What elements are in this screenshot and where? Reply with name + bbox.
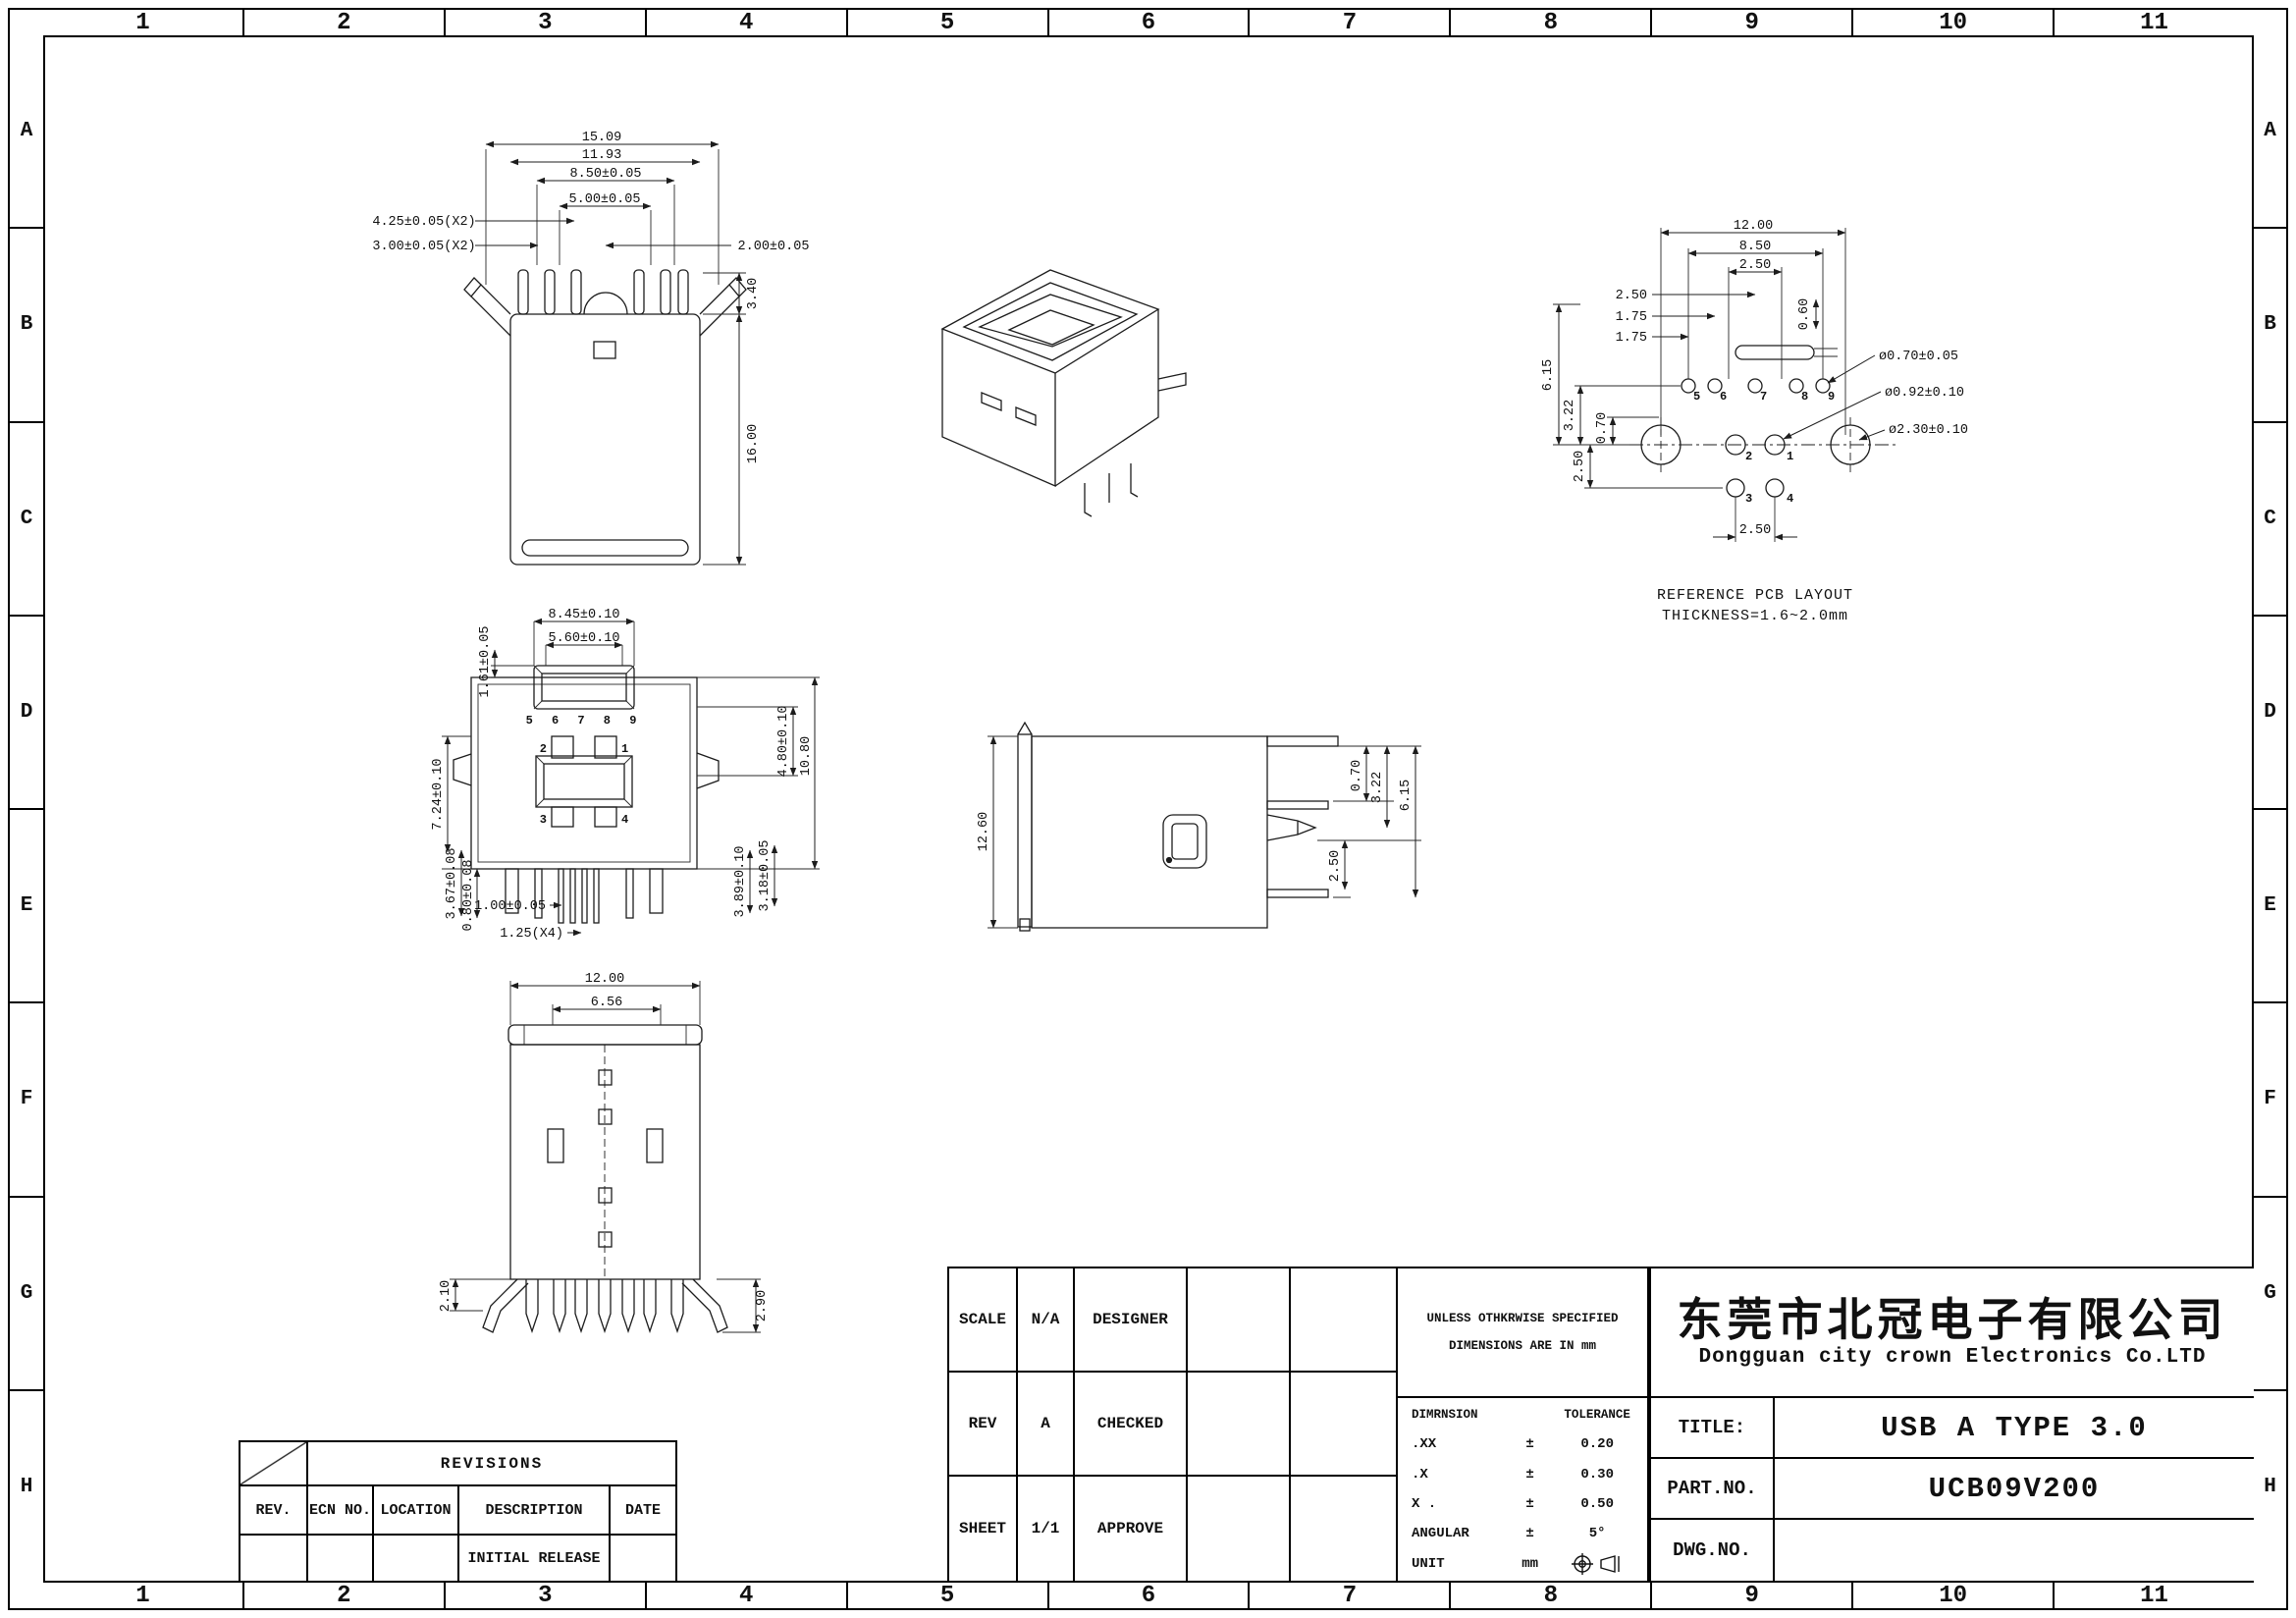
drawing-sheet: 1 2 3 4 5 6 7 8 9 10 11 1 2 3 4 5 6 7 8 … [0, 0, 2296, 1618]
column-label: 8 [1449, 1583, 1650, 1608]
bottom-view-drawing: 12.00 6.56 2.10 2.90 [422, 962, 795, 1375]
revisions-header-location: LOCATION [374, 1486, 459, 1536]
row-label: H [2254, 1389, 2286, 1583]
column-label: 4 [645, 10, 846, 35]
pcb-pin-label: 7 [1760, 390, 1767, 404]
dim-label: 2.90 [755, 1290, 770, 1321]
revisions-title: REVISIONS [308, 1442, 675, 1486]
column-label: 5 [846, 10, 1047, 35]
company-name-cn: 东莞市北冠电子有限公司 [1678, 1296, 2228, 1346]
empty-cell [1291, 1268, 1396, 1373]
top-view-dim-lines [475, 144, 746, 565]
side-view-drawing: 12.60 0.70 3.22 6.15 2.50 [962, 677, 1443, 982]
column-label: 9 [1650, 1583, 1851, 1608]
designer-label: DESIGNER [1075, 1268, 1188, 1373]
dim-label: 4.80±0.10 [776, 706, 791, 778]
side-view-body [1018, 723, 1338, 931]
row-label: E [2254, 808, 2286, 1001]
tolerance-block: UNLESS OTHKRWISE SPECIFIED DIMENSIONS AR… [1396, 1267, 1649, 1583]
column-label: 7 [1248, 1583, 1449, 1608]
revisions-cell-description: INITIAL RELEASE [459, 1536, 611, 1581]
pcb-caption-line1: REFERENCE PCB LAYOUT [1657, 587, 1853, 604]
dim-label: 2.50 [1616, 289, 1647, 303]
checked-value [1188, 1373, 1291, 1477]
top-column-strip: 1 2 3 4 5 6 7 8 9 10 11 [43, 10, 2254, 35]
dim-label: 2.50 [1573, 451, 1587, 482]
pcb-caption-line2: THICKNESS=1.6~2.0mm [1662, 608, 1848, 624]
column-label: 1 [43, 10, 242, 35]
pcb-pin-label: 8 [1801, 390, 1808, 404]
column-label: 1 [43, 1583, 242, 1608]
part-number-label: PART.NO. [1651, 1459, 1775, 1520]
front-pad-label: 4 [621, 813, 628, 827]
sheet-value: 1/1 [1018, 1477, 1075, 1581]
left-row-strip: A B C D E F G H [10, 35, 43, 1583]
pcb-pin-label: 5 [1693, 390, 1700, 404]
dim-label: 8.50±0.05 [570, 167, 642, 182]
dim-label: 3.40 [746, 278, 761, 309]
part-number-value: UCB09V200 [1775, 1459, 2254, 1520]
dim-label: 2.50 [1328, 850, 1343, 882]
dim-label: 6.15 [1399, 780, 1414, 811]
dim-label: 1.75 [1616, 331, 1647, 346]
plus-minus-sign: ± [1513, 1436, 1548, 1452]
dim-label: 12.60 [977, 812, 991, 852]
front-pin-row: 5 6 7 8 9 [526, 714, 643, 728]
dim-label: ø0.92±0.10 [1885, 386, 1964, 401]
row-label: A [2254, 35, 2286, 227]
dim-label: 1.75 [1616, 310, 1647, 325]
row-label: D [10, 615, 43, 808]
row-label: A [10, 35, 43, 227]
row-label: F [2254, 1001, 2286, 1195]
tolerance-note: UNLESS OTHKRWISE SPECIFIED DIMENSIONS AR… [1398, 1268, 1647, 1398]
row-label: E [10, 808, 43, 1001]
dim-label: 1.61±0.05 [478, 626, 493, 698]
column-label: 4 [645, 1583, 846, 1608]
row-label: C [2254, 421, 2286, 615]
tolerance-dim: X . [1398, 1496, 1513, 1512]
unit-icon-cell [1547, 1553, 1647, 1575]
pcb-dim-lines [1553, 228, 1885, 542]
row-label: D [2254, 615, 2286, 808]
dim-label: 2.00±0.05 [738, 240, 810, 254]
dim-label: 3.00±0.05(X2) [373, 240, 476, 254]
sheet-label: SHEET [949, 1477, 1018, 1581]
plus-minus-sign: ± [1513, 1526, 1548, 1541]
row-label: G [2254, 1196, 2286, 1389]
column-label: 10 [1851, 10, 2053, 35]
revisions-header-date: DATE [611, 1486, 675, 1536]
tolerance-col-dimension: DIMRNSION [1398, 1408, 1513, 1422]
dim-label: 2.50 [1739, 523, 1771, 538]
dim-label: 3.18±0.05 [758, 840, 773, 912]
revisions-cell-ecn [308, 1536, 374, 1581]
dim-label: ø0.70±0.05 [1879, 350, 1958, 364]
isometric-view-drawing [883, 236, 1217, 550]
empty-cell [1291, 1477, 1396, 1581]
top-view-drawing: 15.09 11.93 8.50±0.05 5.00±0.05 4.25±0.0… [373, 128, 834, 599]
front-pad-label: 2 [540, 742, 547, 756]
pcb-holes [1629, 346, 1899, 497]
rev-value: A [1018, 1373, 1075, 1477]
front-view-body [454, 666, 719, 923]
dim-label: 10.80 [799, 736, 814, 777]
tolerance-value: 5° [1547, 1526, 1647, 1541]
revisions-header-rev: REV. [240, 1486, 308, 1536]
revisions-diagonal-cell [240, 1442, 308, 1486]
unit-value: mm [1513, 1556, 1548, 1572]
dim-label: 6.15 [1541, 359, 1556, 391]
rev-label: REV [949, 1373, 1018, 1477]
column-label: 11 [2053, 10, 2254, 35]
column-label: 2 [242, 1583, 444, 1608]
front-pad-label: 1 [621, 742, 628, 756]
tolerance-dim: .X [1398, 1467, 1513, 1483]
dim-label: 2.10 [439, 1280, 454, 1312]
row-label: C [10, 421, 43, 615]
column-label: 3 [444, 10, 645, 35]
dim-label: 2.50 [1739, 258, 1771, 273]
dim-label: 16.00 [746, 424, 761, 464]
column-label: 5 [846, 1583, 1047, 1608]
bottom-view-body [483, 1025, 727, 1332]
revisions-header-description: DESCRIPTION [459, 1486, 611, 1536]
dim-label: 0.80±0.08 [461, 860, 476, 932]
revisions-cell-rev [240, 1536, 308, 1581]
pcb-layout-drawing: 5 6 7 8 9 2 1 3 4 12.00 8.50 2.50 2.50 1… [1512, 206, 1983, 638]
dim-label: 8.45±0.10 [549, 608, 620, 622]
dim-label: 3.22 [1370, 772, 1385, 803]
dim-label: 3.67±0.08 [445, 848, 459, 920]
column-label: 6 [1047, 10, 1249, 35]
dim-label: 3.22 [1563, 400, 1577, 431]
isometric-body [942, 270, 1186, 516]
company-name-en: Dongguan city crown Electronics Co.LTD [1699, 1346, 2207, 1369]
third-angle-projection-icon [1572, 1553, 1623, 1575]
dim-label: 12.00 [585, 972, 625, 987]
revisions-table: REVISIONS REV. ECN NO. LOCATION DESCRIPT… [239, 1440, 677, 1583]
tolerance-note-line1: UNLESS OTHKRWISE SPECIFIED [1426, 1312, 1618, 1325]
checked-label: CHECKED [1075, 1373, 1188, 1477]
pcb-pin-label: 3 [1745, 492, 1752, 506]
row-label: B [10, 227, 43, 420]
unit-label: UNIT [1398, 1556, 1513, 1572]
scale-value: N/A [1018, 1268, 1075, 1373]
right-row-strip: A B C D E F G H [2254, 35, 2286, 1583]
drawing-number-value [1775, 1520, 2254, 1581]
column-label: 11 [2053, 1583, 2254, 1608]
dim-label: ø2.30±0.10 [1889, 423, 1968, 438]
dim-label: 15.09 [582, 131, 622, 145]
column-label: 6 [1047, 1583, 1249, 1608]
dim-label: 5.60±0.10 [549, 631, 620, 646]
revisions-cell-date [611, 1536, 675, 1581]
title-block-rows: TITLE: USB A TYPE 3.0 PART.NO. UCB09V200… [1651, 1398, 2254, 1581]
dim-label: 1.00±0.05 [474, 899, 546, 914]
row-label: H [10, 1389, 43, 1583]
tolerance-table: DIMRNSION TOLERANCE .XX ± 0.20 .X ± 0.30… [1398, 1398, 1647, 1581]
pcb-pin-label: 1 [1787, 450, 1793, 463]
drawing-number-label: DWG.NO. [1651, 1520, 1775, 1581]
dim-label: 0.70 [1595, 412, 1610, 444]
dim-label: 1.25(X4) [500, 927, 563, 942]
row-label: G [10, 1196, 43, 1389]
tolerance-col-tolerance: TOLERANCE [1547, 1408, 1647, 1422]
tolerance-dim: .XX [1398, 1436, 1513, 1452]
column-label: 2 [242, 10, 444, 35]
company-header: 东莞市北冠电子有限公司 Dongguan city crown Electron… [1651, 1268, 2254, 1398]
column-label: 10 [1851, 1583, 2053, 1608]
pcb-pin-label: 2 [1745, 450, 1752, 463]
dim-label: 12.00 [1734, 219, 1774, 234]
plus-minus-sign: ± [1513, 1496, 1548, 1512]
pcb-pin-label: 4 [1787, 492, 1793, 506]
empty-cell [1291, 1373, 1396, 1477]
dim-label: 3.89±0.10 [733, 846, 748, 918]
column-label: 3 [444, 1583, 645, 1608]
bottom-column-strip: 1 2 3 4 5 6 7 8 9 10 11 [43, 1583, 2254, 1608]
row-label: B [2254, 227, 2286, 420]
column-label: 7 [1248, 10, 1449, 35]
column-label: 8 [1449, 10, 1650, 35]
dim-label: 5.00±0.05 [569, 192, 641, 207]
dim-label: 7.24±0.10 [431, 759, 446, 831]
title-label: TITLE: [1651, 1398, 1775, 1459]
front-pad-label: 3 [540, 813, 547, 827]
column-label: 9 [1650, 10, 1851, 35]
dim-label: 6.56 [591, 996, 622, 1010]
designer-value [1188, 1268, 1291, 1373]
approve-value [1188, 1477, 1291, 1581]
info-table: SCALE N/A DESIGNER REV A CHECKED SHEET 1… [947, 1267, 1396, 1583]
dim-label: 0.60 [1797, 298, 1812, 330]
scale-label: SCALE [949, 1268, 1018, 1373]
tolerance-value: 0.50 [1547, 1496, 1647, 1512]
row-label: F [10, 1001, 43, 1195]
front-view-drawing: 8.45±0.10 5.60±0.10 1.61±0.05 7.24±0.10 … [412, 589, 844, 977]
tolerance-value: 0.20 [1547, 1436, 1647, 1452]
tolerance-note-line2: DIMENSIONS ARE IN mm [1449, 1339, 1596, 1353]
dim-label: 11.93 [582, 148, 622, 163]
revisions-header-ecn: ECN NO. [308, 1486, 374, 1536]
title-value: USB A TYPE 3.0 [1775, 1398, 2254, 1459]
pcb-pin-label: 9 [1828, 390, 1835, 404]
dim-label: 0.70 [1350, 760, 1364, 791]
tolerance-value: 0.30 [1547, 1467, 1647, 1483]
approve-label: APPROVE [1075, 1477, 1188, 1581]
dim-label: 4.25±0.05(X2) [373, 215, 476, 230]
dim-label: 8.50 [1739, 240, 1771, 254]
title-block: 东莞市北冠电子有限公司 Dongguan city crown Electron… [1649, 1267, 2254, 1583]
tolerance-dim: ANGULAR [1398, 1526, 1513, 1541]
revisions-cell-location [374, 1536, 459, 1581]
pcb-pin-label: 6 [1720, 390, 1727, 404]
plus-minus-sign: ± [1513, 1467, 1548, 1483]
